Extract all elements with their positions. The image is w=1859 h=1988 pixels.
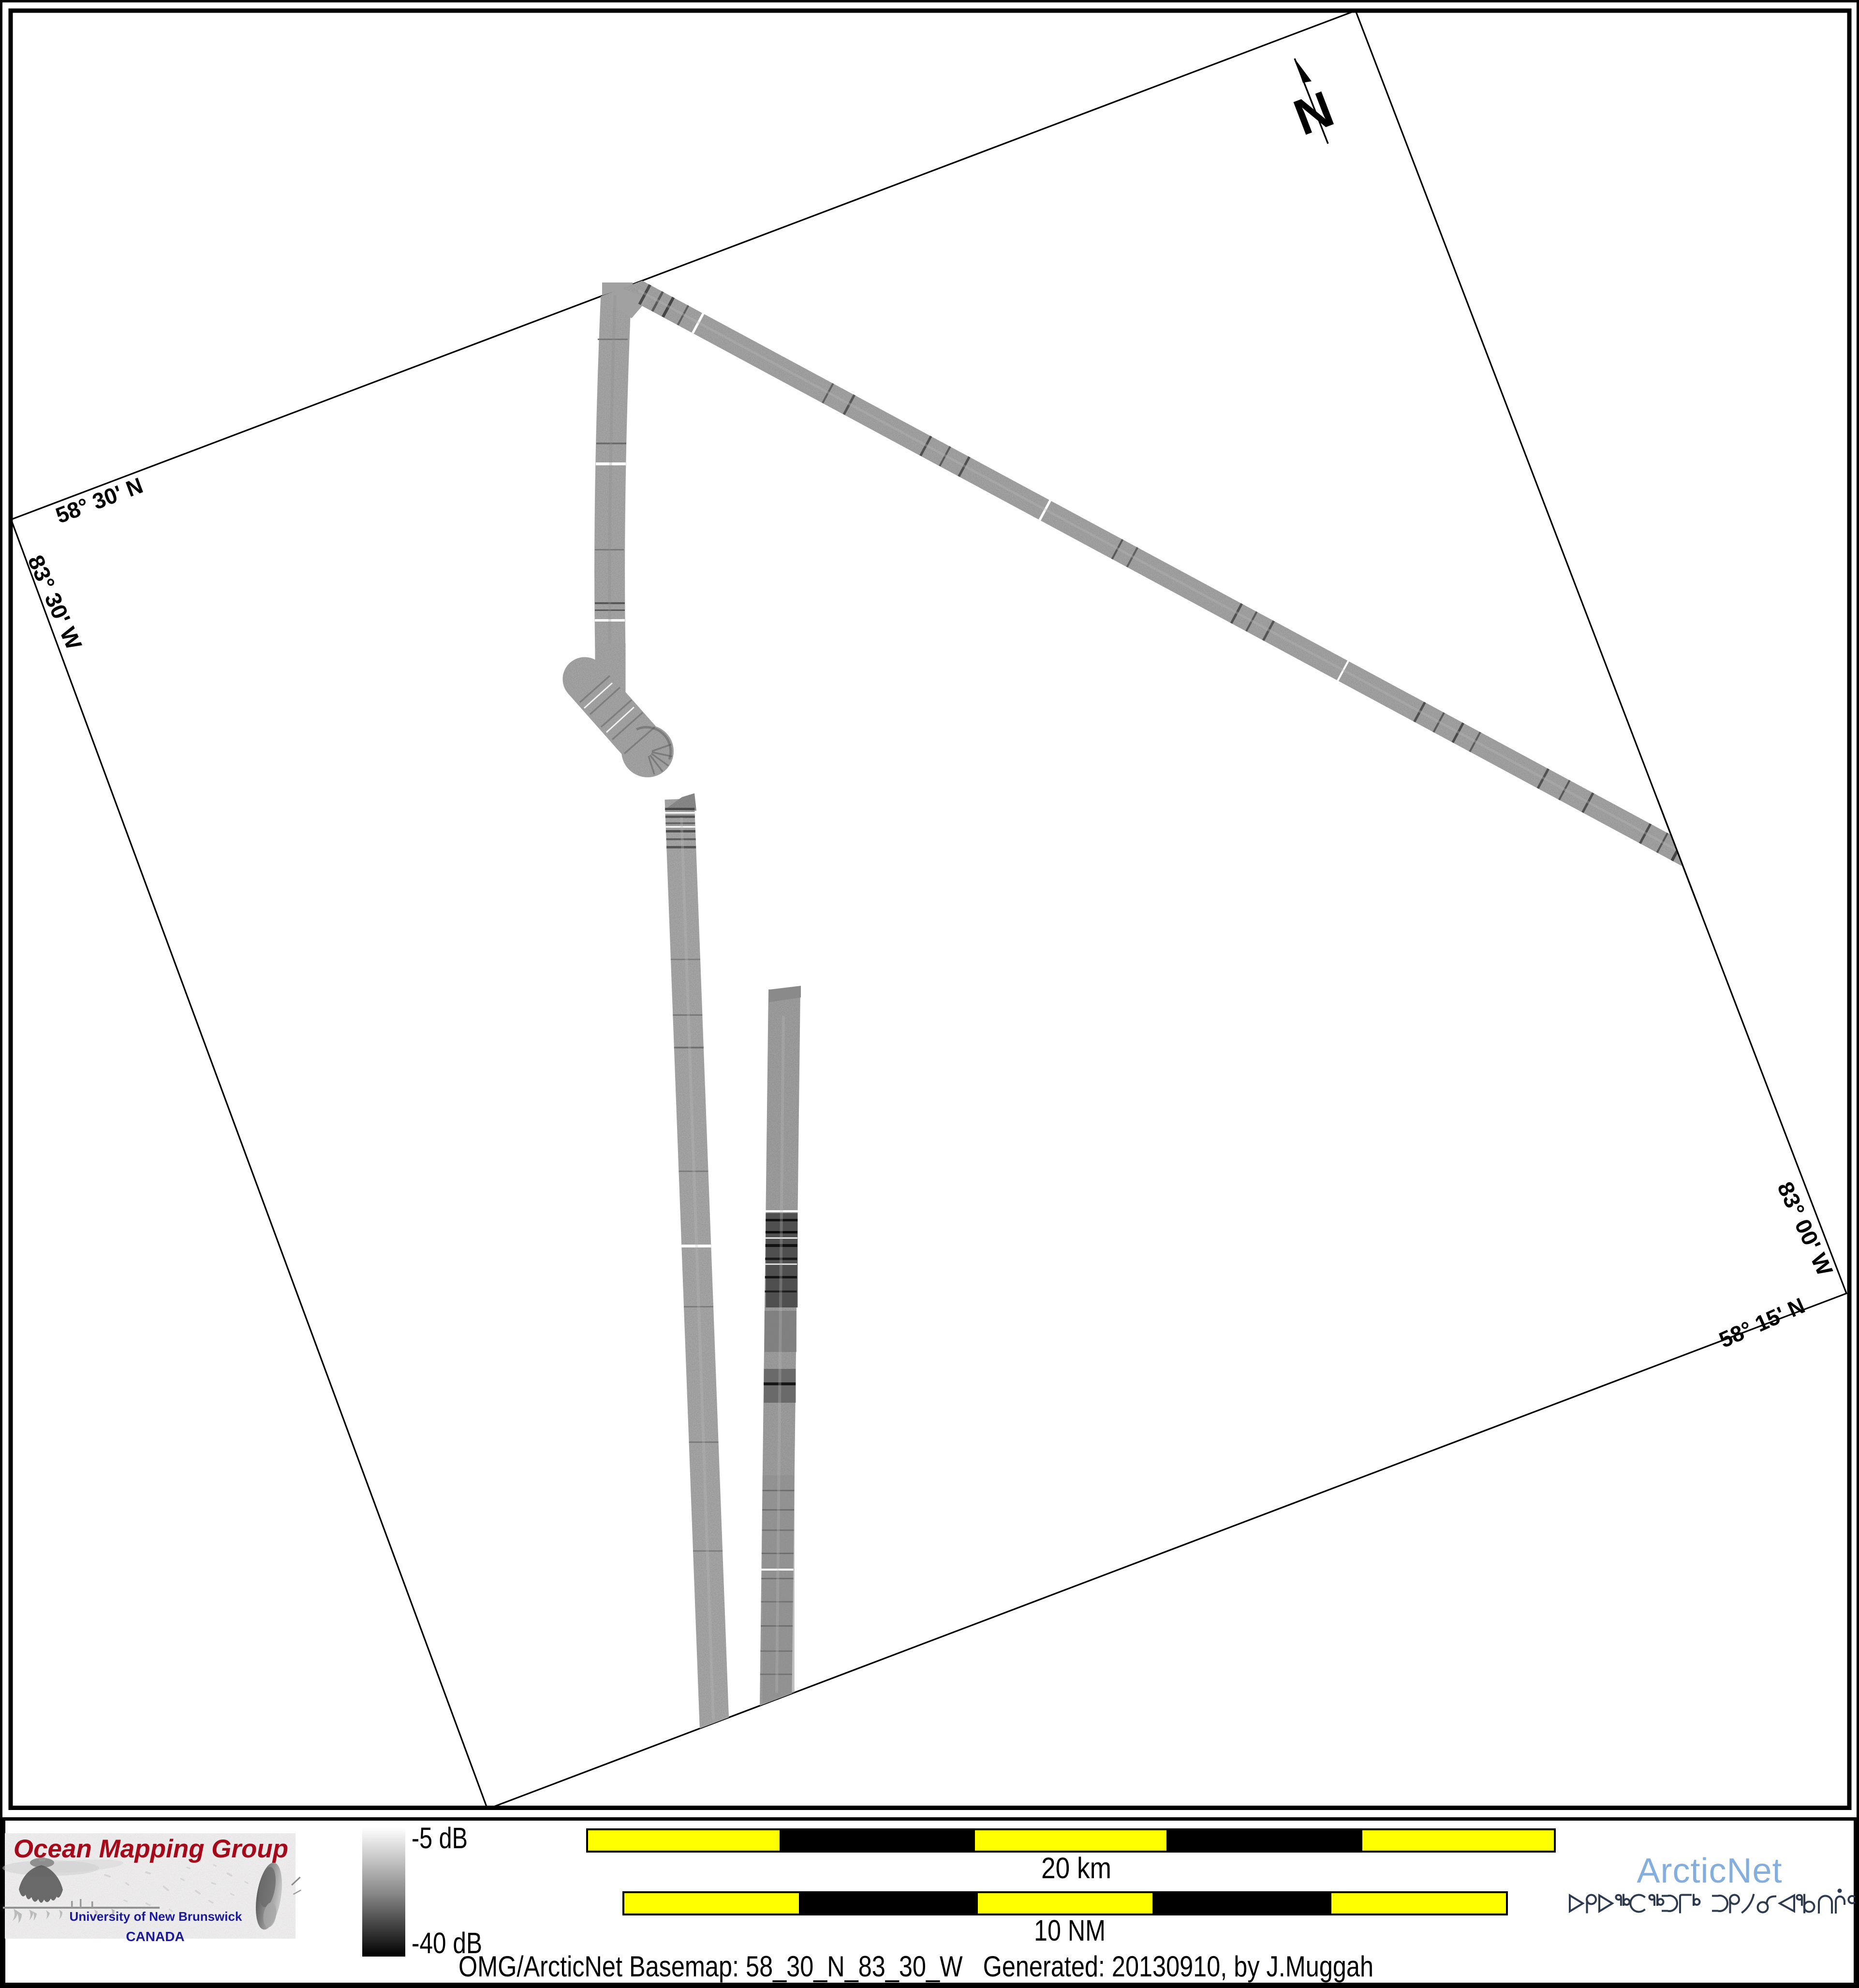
svg-text:ArcticNet: ArcticNet	[1637, 1852, 1782, 1890]
svg-text:University of New Brunswick: University of New Brunswick	[70, 1909, 242, 1924]
svg-text:20 km: 20 km	[1041, 1852, 1111, 1884]
svg-text:10 NM: 10 NM	[1034, 1914, 1106, 1947]
svg-text:Ocean Mapping Group: Ocean Mapping Group	[14, 1835, 288, 1863]
svg-text:CANADA: CANADA	[126, 1929, 184, 1944]
svg-text:-5 dB: -5 dB	[412, 1822, 468, 1854]
svg-text:OMG/ArcticNet Basemap: 58_30_N: OMG/ArcticNet Basemap: 58_30_N_83_30_W G…	[458, 1950, 1373, 1983]
